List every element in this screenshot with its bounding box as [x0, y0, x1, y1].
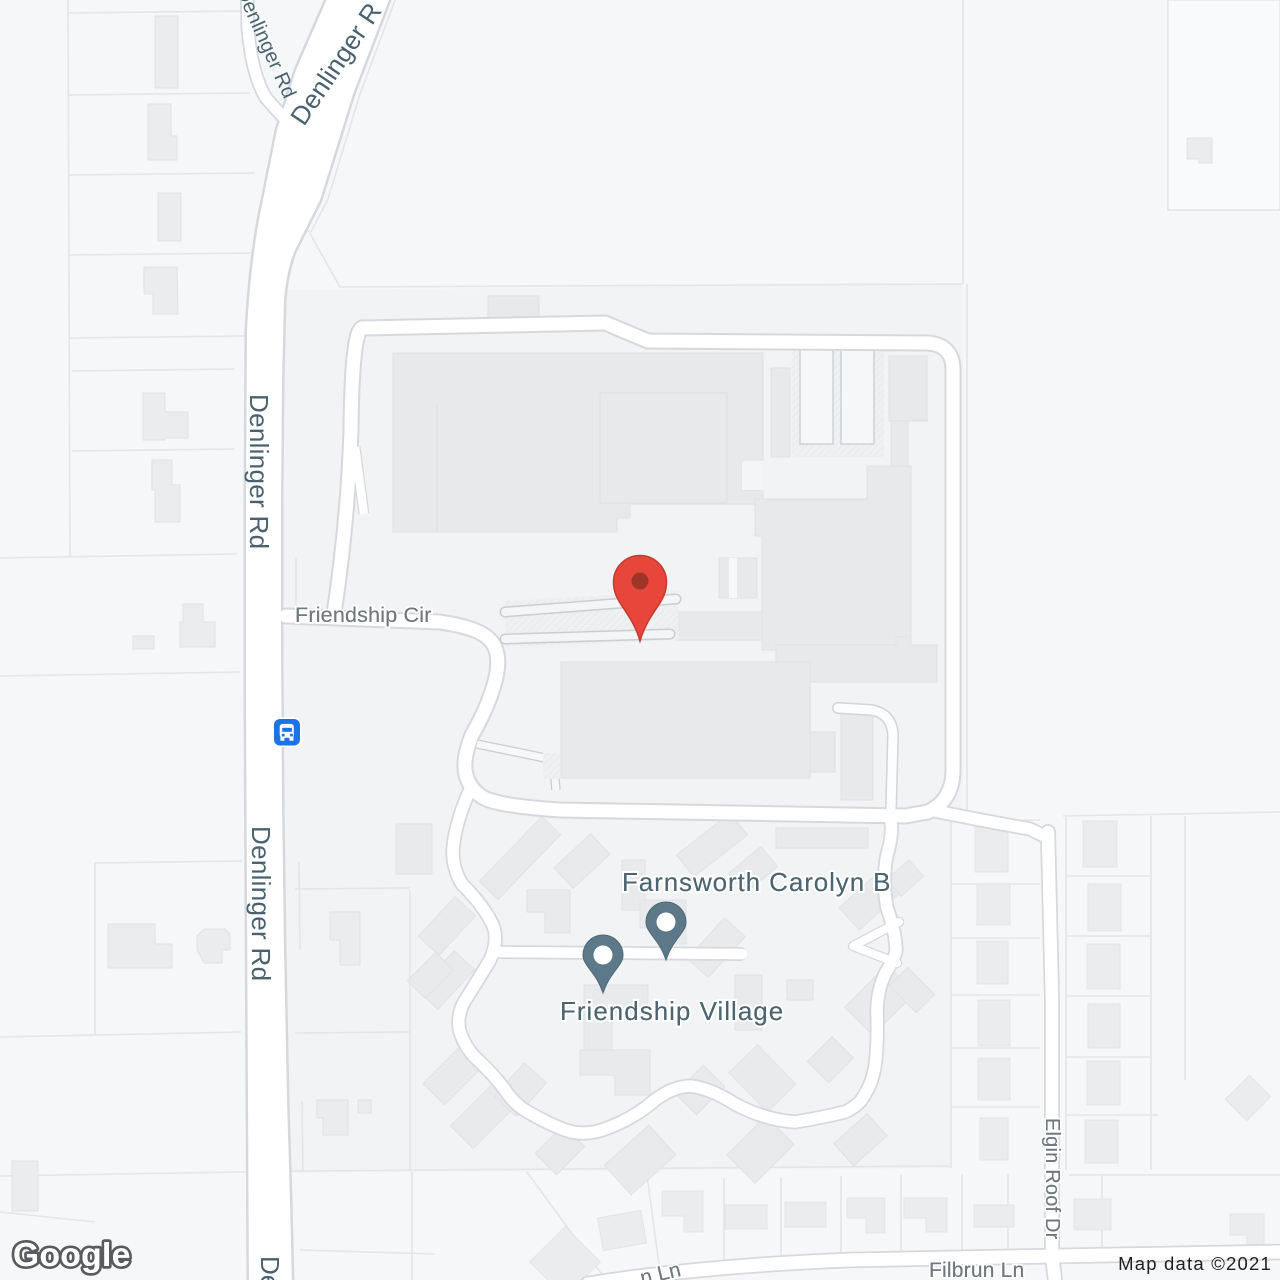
svg-text:Google: Google [13, 1237, 131, 1274]
svg-text:Denlinger Rd: Denlinger Rd [246, 826, 276, 981]
svg-text:Farnsworth Carolyn B: Farnsworth Carolyn B [622, 867, 891, 897]
svg-text:Filbrun Ln: Filbrun Ln [929, 1259, 1024, 1280]
svg-text:Map data ©2021: Map data ©2021 [1118, 1253, 1272, 1274]
svg-text:Friendship Village: Friendship Village [560, 996, 784, 1026]
svg-text:Elgin Roof Dr: Elgin Roof Dr [1041, 1118, 1063, 1240]
svg-text:Friendship Cir: Friendship Cir [295, 603, 432, 627]
svg-text:De: De [255, 1256, 285, 1280]
svg-text:Denlinger Rd: Denlinger Rd [244, 394, 274, 549]
